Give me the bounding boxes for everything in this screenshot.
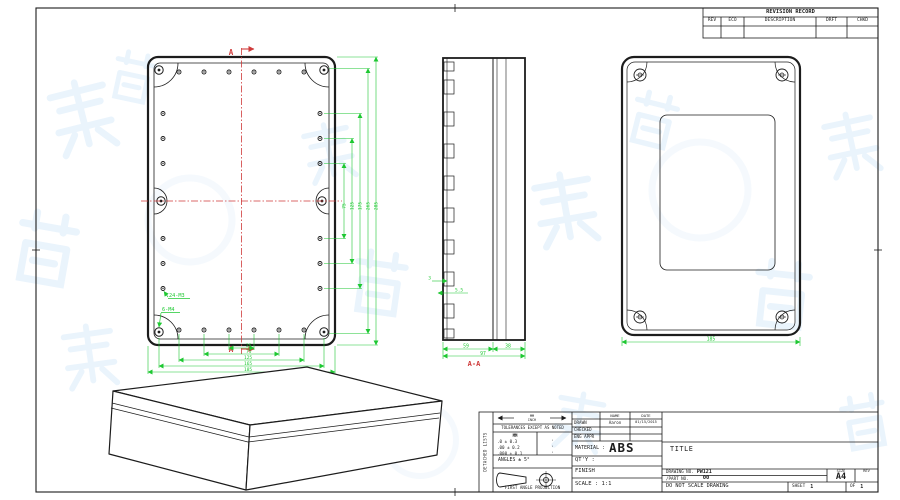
front-view: A A 24-M3 6-M4 25 75 125 165 xyxy=(141,48,380,374)
side-label-text: DETACHED LISTS xyxy=(484,432,488,471)
svg-text:125: 125 xyxy=(350,202,356,210)
sheet-value: 1 xyxy=(810,485,813,490)
units-inch: INCH xyxy=(528,418,536,422)
dim-slot: 5.5 xyxy=(455,288,463,294)
section-view-label: A-A xyxy=(468,360,481,368)
svg-text:175: 175 xyxy=(358,202,364,210)
units-mm-inch: MM INCH xyxy=(514,412,550,424)
sheet-label: SHEET xyxy=(792,485,805,489)
svg-text:125: 125 xyxy=(244,355,252,361)
part-no-label: /PART NO. xyxy=(666,477,689,481)
dim-back-width: 185 xyxy=(707,337,716,343)
svg-text:75: 75 xyxy=(246,349,252,355)
svg-text:165: 165 xyxy=(244,361,252,367)
revision-table-title: REVISION RECORD xyxy=(703,8,878,17)
drawn-date: 01/15/2015 xyxy=(630,419,662,427)
section-label-bottom: A xyxy=(229,345,234,354)
name-header: NAME xyxy=(600,412,630,419)
isometric-view xyxy=(109,367,442,490)
angles-note: ANGLES ± 5° xyxy=(498,455,530,468)
section-label-top: A xyxy=(229,48,234,57)
drawn-name: Aaron xyxy=(600,419,630,427)
tol-row-2: .00 ± 0.2 xyxy=(497,446,520,450)
thread-note-m3: 24-M3 xyxy=(169,293,185,299)
front-right-dimension-labels: 75 125 175 265 285 xyxy=(342,202,380,210)
drawing-graphics: A A 24-M3 6-M4 25 75 125 165 xyxy=(0,0,900,500)
dim-body-depth: 59 xyxy=(463,344,469,350)
recessed-panel xyxy=(660,115,775,270)
checked-label: CHECKED xyxy=(574,427,592,434)
material-value: ABS xyxy=(609,442,635,455)
qty-label: QT'Y : xyxy=(575,456,595,466)
tol-mark-3: · xyxy=(551,451,554,456)
revision-col-rev: REV xyxy=(703,17,721,26)
of-value: 1 xyxy=(860,485,863,490)
finish-label: FINISH xyxy=(575,466,595,478)
title-label: TITLE xyxy=(670,446,693,453)
of-cell: OF 1 xyxy=(850,482,863,492)
rev-label: REV xyxy=(855,470,878,475)
part-no-value: 00 xyxy=(703,476,710,482)
section-view: 3 5.5 59 38 97 A-A xyxy=(428,58,525,368)
svg-text:185: 185 xyxy=(244,367,252,373)
projection-note: FIRST ANGLE PROJECTION xyxy=(493,485,572,492)
dim-lid-depth: 38 xyxy=(505,344,511,350)
drawing-no-value: PW121 xyxy=(697,470,712,475)
revision-col-eco: ECO xyxy=(721,17,744,26)
date-header: DATE xyxy=(630,412,662,419)
title-block-side-label: DETACHED LISTS xyxy=(479,412,493,492)
drawing-no-label: DRAWING NO. xyxy=(666,470,694,474)
engineering-drawing-sheet: A A 24-M3 6-M4 25 75 125 165 xyxy=(0,0,900,500)
tol-row-1: .0 ± 0.3 xyxy=(497,440,517,444)
svg-text:265: 265 xyxy=(366,202,372,210)
do-not-scale-note: DO NOT SCALE DRAWING xyxy=(666,482,728,492)
size-value: A4 xyxy=(827,473,855,482)
scale-label: SCALE : 1:1 xyxy=(575,478,611,492)
svg-text:285: 285 xyxy=(374,202,380,210)
eng-appr-label: ENG APPR xyxy=(574,434,594,441)
internal-bosses xyxy=(444,62,454,338)
tolerance-note: TOLERANCES EXCEPT AS NOTED xyxy=(493,424,572,432)
svg-text:75: 75 xyxy=(342,203,348,209)
revision-col-drft: DRFT xyxy=(816,17,847,26)
revision-col-chkd: CHKD xyxy=(847,17,878,26)
material-label: MATERIAL : xyxy=(575,441,605,456)
dim-rib: 3 xyxy=(428,276,431,282)
svg-text:25: 25 xyxy=(246,343,252,349)
thread-note-m4: 6-M4 xyxy=(162,307,175,313)
sheet-cell: SHEET 1 xyxy=(792,482,813,492)
revision-col-description: DESCRIPTION xyxy=(744,17,816,26)
dim-total-depth: 97 xyxy=(480,351,486,357)
back-screw-holes xyxy=(634,69,788,323)
front-bottom-dimension-labels: 25 75 125 165 185 xyxy=(244,343,252,373)
of-label: OF xyxy=(850,485,855,489)
drawn-label: DRAWN xyxy=(574,419,587,427)
